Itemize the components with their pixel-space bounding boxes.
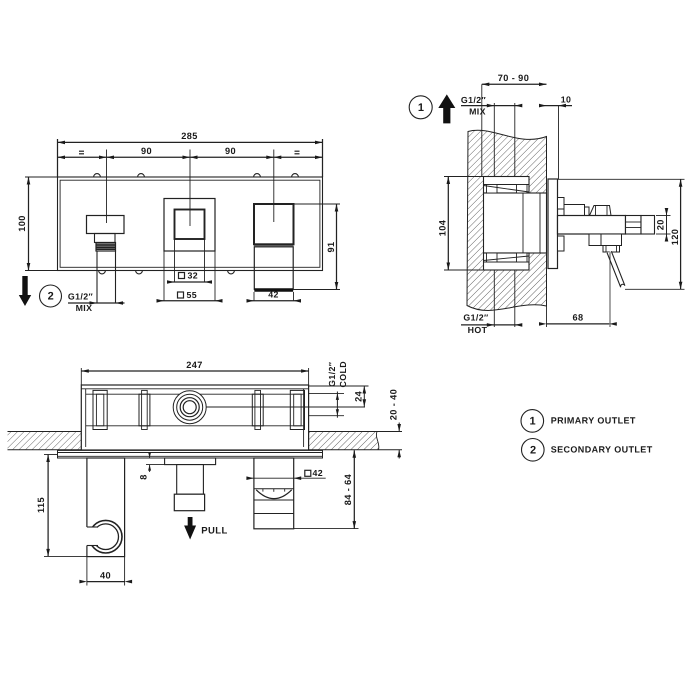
- svg-text:70 - 90: 70 - 90: [498, 73, 529, 83]
- svg-text:90: 90: [141, 146, 152, 156]
- svg-text:42: 42: [313, 468, 324, 478]
- svg-text:8: 8: [139, 474, 149, 480]
- svg-text:10: 10: [561, 94, 572, 104]
- svg-text:91: 91: [326, 241, 336, 252]
- svg-text:68: 68: [572, 312, 583, 322]
- svg-text:32: 32: [188, 270, 199, 280]
- svg-text:247: 247: [186, 360, 203, 370]
- svg-text:G1/2″: G1/2″: [463, 313, 489, 323]
- svg-text:2: 2: [530, 444, 536, 456]
- svg-text:1: 1: [418, 102, 424, 114]
- svg-text:PRIMARY OUTLET: PRIMARY OUTLET: [551, 416, 636, 426]
- svg-text:285: 285: [181, 131, 198, 141]
- svg-text:40: 40: [100, 571, 111, 581]
- svg-text:G1/2″: G1/2″: [327, 361, 337, 387]
- svg-text:COLD: COLD: [338, 361, 348, 388]
- svg-text:24: 24: [354, 390, 364, 402]
- svg-text:20: 20: [656, 219, 666, 230]
- svg-text:G1/2″: G1/2″: [461, 95, 487, 105]
- svg-text:104: 104: [438, 219, 448, 236]
- svg-text:HOT: HOT: [468, 325, 488, 335]
- svg-text:SECONDARY OUTLET: SECONDARY OUTLET: [551, 445, 653, 455]
- svg-text:2: 2: [48, 291, 54, 303]
- svg-text:84 - 64: 84 - 64: [343, 473, 353, 505]
- svg-text:90: 90: [225, 146, 236, 156]
- svg-text:100: 100: [17, 215, 27, 232]
- svg-text:PULL: PULL: [201, 525, 227, 536]
- svg-text:115: 115: [36, 497, 46, 513]
- svg-text:1: 1: [529, 416, 535, 428]
- svg-text:20 - 40: 20 - 40: [389, 389, 399, 420]
- svg-text:G1/2″: G1/2″: [68, 292, 94, 302]
- svg-text:42: 42: [268, 290, 279, 300]
- svg-text:120: 120: [670, 229, 680, 246]
- svg-text:MIX: MIX: [469, 107, 486, 117]
- svg-text:55: 55: [187, 290, 198, 300]
- svg-text:MIX: MIX: [76, 303, 93, 313]
